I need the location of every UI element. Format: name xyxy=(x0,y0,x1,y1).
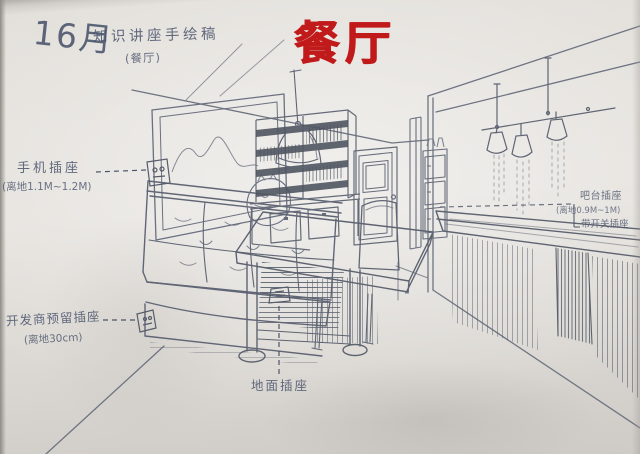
annotation-bar-outlet: 吧台插座 xyxy=(580,192,622,203)
room-perspective-lines xyxy=(46,26,640,454)
bar-counter xyxy=(436,211,640,400)
annotation-phone-outlet: 手机插座 xyxy=(17,162,81,176)
annotation-floor-outlet: 地面插座 xyxy=(251,379,309,392)
picture-frame xyxy=(152,94,287,240)
drawer-cabinet xyxy=(423,138,447,239)
sketch-photo: 16月 知识讲座手绘稿 (餐厅) 餐厅 手机插座 (离地1.1M~1.2M) 开… xyxy=(0,0,640,454)
annotation-bar-outlet-switch: 带开关插座 xyxy=(581,220,629,230)
wall-shelf-unit xyxy=(256,110,356,202)
sketch-title-sub: (餐厅) xyxy=(125,51,161,64)
annotation-phone-outlet-height: (离地1.1M~1.2M) xyxy=(2,182,92,193)
wall-outlet-reserved-symbol xyxy=(137,310,156,332)
page-title: 餐厅 xyxy=(294,19,396,67)
annotation-bar-outlet-height: (离地0.9M~1M) xyxy=(556,207,620,216)
